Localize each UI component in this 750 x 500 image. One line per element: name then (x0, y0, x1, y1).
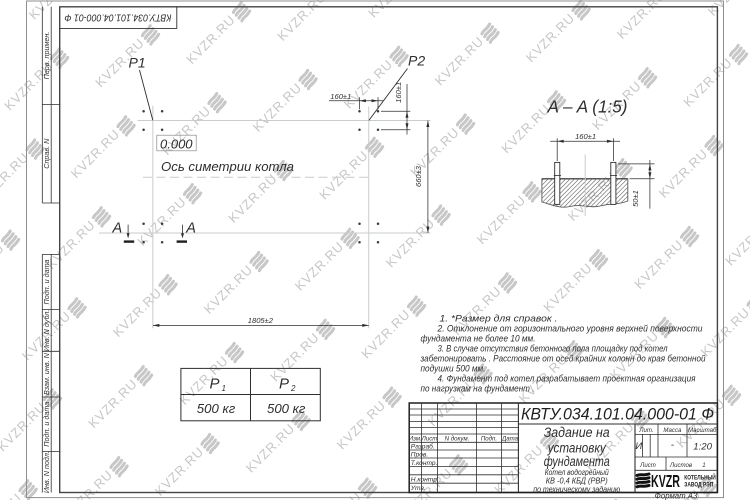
svg-text:KVZR.RU: KVZR.RU (334, 397, 389, 452)
svg-text:A: A (112, 221, 123, 237)
svg-text:ЗАВОД РЭП: ЗАВОД РЭП (684, 483, 713, 489)
svg-text:Н.контр.: Н.контр. (411, 477, 439, 484)
svg-text:P2: P2 (408, 53, 425, 69)
svg-text:4. Фундамент под котел разраб: 4. Фундамент под котел разрабатывает про… (438, 373, 696, 383)
svg-text:KVZR.RU: KVZR.RU (631, 237, 686, 292)
svg-text:N докум.: N докум. (445, 436, 470, 443)
svg-text:2. Отклонение от горизонтальн: 2. Отклонение от горизонтального уровня … (437, 323, 703, 333)
svg-text:Лист: Лист (421, 436, 438, 443)
svg-text:KVZR.RU: KVZR.RU (309, 488, 364, 500)
svg-text:Инв. N дубл.: Инв. N дубл. (42, 310, 51, 352)
svg-text:KVZR.RU: KVZR.RU (152, 444, 207, 499)
svg-text:Задание на: Задание на (544, 425, 610, 440)
svg-text:160±1: 160±1 (575, 132, 596, 141)
svg-text:Масса: Масса (663, 427, 682, 434)
svg-text:KVZR.RU: KVZR.RU (68, 126, 123, 181)
svg-text:P1: P1 (129, 55, 146, 71)
svg-text:КВТУ.034.101.04.000-01 Ф: КВТУ.034.101.04.000-01 Ф (64, 12, 171, 23)
svg-text:KVZR.RU: KVZR.RU (540, 260, 595, 315)
svg-text:P: P (279, 375, 289, 392)
svg-text:KVZR.RU: KVZR.RU (292, 239, 347, 294)
svg-text:1:20: 1:20 (693, 442, 712, 453)
svg-text:Справ. N: Справ. N (42, 138, 51, 169)
svg-text:Подп. и дата: Подп. и дата (42, 260, 51, 305)
svg-text:Дата: Дата (501, 436, 519, 443)
svg-text:Утв.: Утв. (410, 485, 426, 492)
svg-text:подушки 500 мм.: подушки 500 мм. (421, 363, 486, 373)
svg-text:KVZR.RU: KVZR.RU (110, 285, 165, 340)
svg-text:Подп. и дата: Подп. и дата (42, 402, 51, 447)
svg-text:1: 1 (702, 462, 705, 469)
svg-text:KVZR.RU: KVZR.RU (243, 421, 298, 476)
svg-text:KVZR.RU: KVZR.RU (722, 214, 750, 269)
svg-text:Лист: Лист (639, 462, 656, 469)
svg-text:KVZR.RU: KVZR.RU (0, 240, 7, 295)
svg-text:3. В случае отсутствия бетонн: 3. В случае отсутствия бетонного пола пл… (438, 343, 668, 353)
svg-text:500 кг: 500 кг (197, 401, 236, 416)
svg-text:KVZR: KVZR (651, 471, 680, 491)
svg-text:KVZR.RU: KVZR.RU (474, 192, 529, 247)
svg-text:KVZR.RU: KVZR.RU (85, 376, 140, 431)
svg-text:KVZR.RU: KVZR.RU (498, 101, 553, 156)
svg-text:KVZR.RU: KVZR.RU (316, 148, 371, 203)
svg-text:KVZR.RU: KVZR.RU (176, 353, 231, 408)
svg-text:KVZR.RU: KVZR.RU (523, 10, 578, 65)
svg-text:КОТЕЛЬНЫЙ: КОТЕЛЬНЫЙ (684, 474, 716, 482)
svg-text:50±1: 50±1 (631, 190, 640, 207)
svg-text:KVZR.RU: KVZR.RU (201, 262, 256, 317)
svg-text:KVZR.RU: KVZR.RU (432, 33, 487, 88)
svg-text:KVZR.RU: KVZR.RU (267, 330, 322, 385)
svg-text:KVZR.RU: KVZR.RU (183, 12, 238, 67)
svg-text:Подп.: Подп. (481, 436, 497, 443)
svg-text:1. *Размер для справок .: 1. *Размер для справок . (440, 313, 558, 323)
svg-text:KVZR.RU: KVZR.RU (680, 55, 735, 110)
svg-text:160±1: 160±1 (394, 82, 403, 103)
svg-text:по техническому заданию: по техническому заданию (533, 485, 620, 494)
svg-text:KVZR.RU: KVZR.RU (61, 467, 116, 500)
svg-text:1: 1 (222, 384, 226, 393)
svg-text:KVZR.RU: KVZR.RU (250, 80, 305, 135)
svg-text:KVZR.RU: KVZR.RU (656, 146, 711, 201)
svg-text:KVZR.RU: KVZR.RU (365, 0, 420, 21)
svg-text:Перв. примен.: Перв. примен. (42, 32, 51, 80)
svg-text:Ось симетрии котла: Ось симетрии котла (161, 159, 294, 174)
svg-text:660±3: 660±3 (414, 165, 423, 187)
svg-text:И: И (635, 441, 642, 452)
svg-text:0.000: 0.000 (160, 136, 193, 151)
svg-text:Инв. N подл.: Инв. N подл. (42, 451, 51, 493)
svg-text:Пров.: Пров. (411, 451, 429, 458)
svg-text:Лит.: Лит. (638, 427, 653, 434)
svg-text:KVZR.RU: KVZR.RU (383, 215, 438, 270)
svg-text:2: 2 (290, 384, 296, 393)
svg-text:забетонировать . Расстояние о: забетонировать . Расстояние от осей край… (420, 353, 706, 363)
svg-text:160±1: 160±1 (330, 92, 351, 101)
svg-text:по нагрузкам на фундамент .: по нагрузкам на фундамент . (421, 383, 535, 393)
svg-text:A: A (185, 221, 196, 237)
svg-text:1805±2: 1805±2 (248, 316, 274, 325)
svg-text:Листов: Листов (669, 462, 692, 469)
svg-text:Изм.: Изм. (409, 436, 422, 443)
svg-text:A – A (1:5): A – A (1:5) (547, 96, 628, 116)
svg-text:P: P (210, 375, 220, 392)
svg-text:КВТУ.034.101.04.000-01 Ф: КВТУ.034.101.04.000-01 Ф (521, 405, 714, 423)
svg-text:KVZR.RU: KVZR.RU (225, 171, 280, 226)
svg-text:фундамента не более 10 мм.: фундамента не более 10 мм. (421, 333, 536, 343)
svg-text:Т.контр.: Т.контр. (411, 460, 438, 467)
svg-text:KVZR.RU: KVZR.RU (358, 306, 413, 361)
svg-text:фундамента: фундамента (544, 454, 610, 469)
svg-text:500 кг: 500 кг (267, 401, 306, 416)
svg-text:Взам. инв. N: Взам. инв. N (42, 352, 51, 395)
svg-text:Формат А3: Формат А3 (655, 492, 698, 500)
svg-text:Разраб.: Разраб. (411, 443, 435, 451)
svg-text:KVZR.RU: KVZR.RU (705, 0, 750, 19)
svg-text:KVZR.RU: KVZR.RU (341, 57, 396, 112)
svg-text:Масштаб: Масштаб (688, 427, 717, 434)
